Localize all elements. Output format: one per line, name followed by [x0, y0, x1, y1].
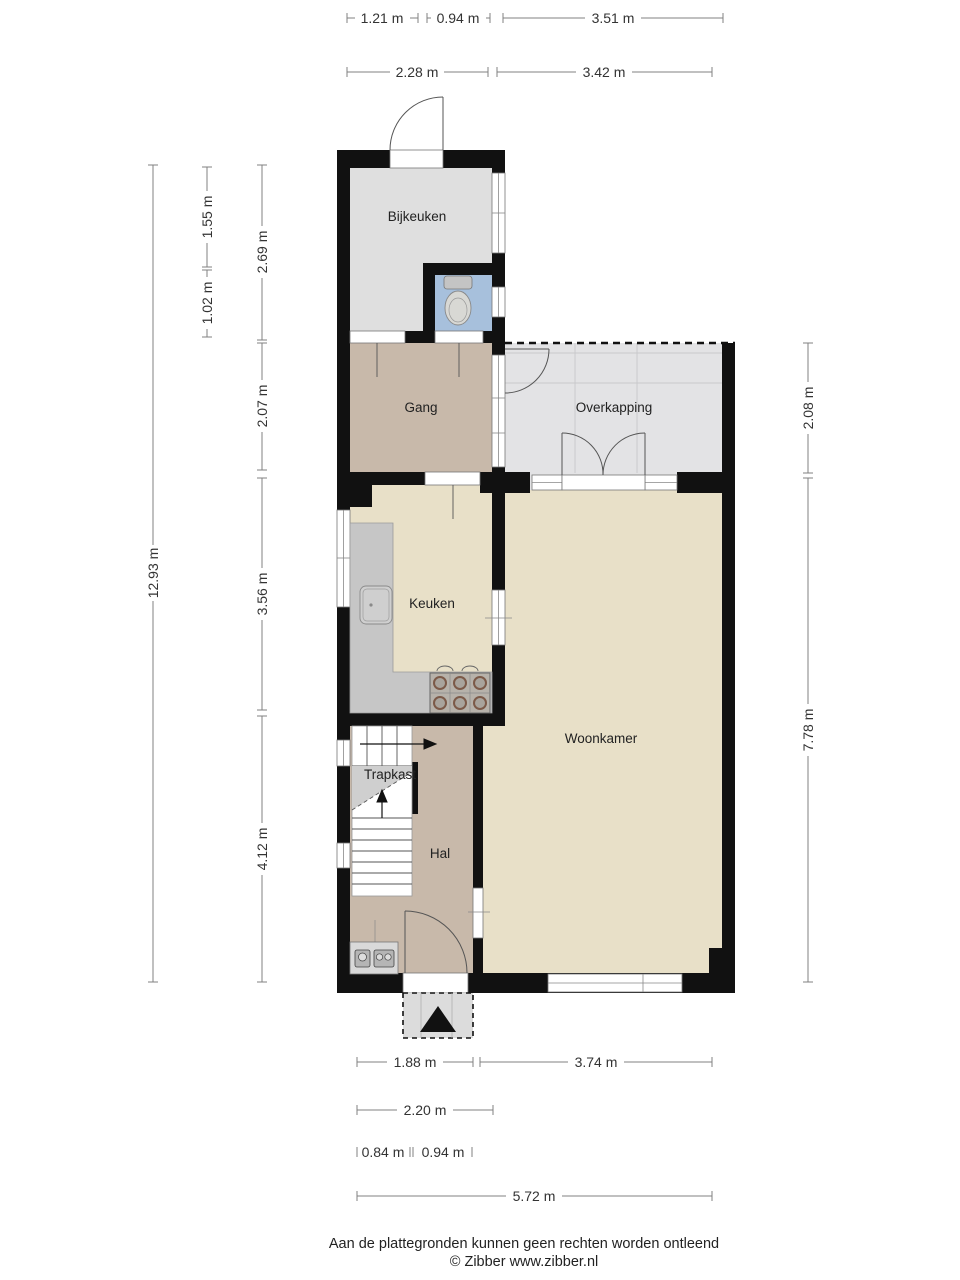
wall-woonkamer-top-left	[480, 472, 530, 493]
dim-bottom-094: 0.94 m	[422, 1144, 465, 1160]
electric-meter-icon	[355, 950, 370, 967]
dim-right-208: 2.08 m	[800, 387, 816, 430]
floorplan-drawing: Bijkeuken Gang Overkapping Keuken Woonka…	[0, 0, 960, 1280]
gas-meter-icon	[374, 950, 394, 967]
sink-icon	[360, 586, 392, 624]
dim-bottom-220: 2.20 m	[404, 1102, 447, 1118]
footer-copyright: © Zibber www.zibber.nl	[450, 1254, 599, 1270]
dim-left-1293: 12.93 m	[145, 548, 161, 599]
wall-toilet-top	[423, 263, 492, 275]
wall-keuken-hal	[350, 713, 505, 726]
wall-pier	[350, 485, 372, 507]
footer: Aan de plattegronden kunnen geen rechten…	[329, 1236, 719, 1270]
room-label-overkapping: Overkapping	[576, 400, 653, 415]
dim-left-155: 1.55 m	[199, 196, 215, 239]
dim-right-778: 7.78 m	[800, 709, 816, 752]
room-label-bijkeuken: Bijkeuken	[388, 209, 447, 224]
floorplan-page: Bijkeuken Gang Overkapping Keuken Woonka…	[0, 0, 960, 1280]
wall-right	[722, 343, 735, 993]
overkapping-floor	[505, 343, 722, 490]
dim-bottom-084: 0.84 m	[362, 1144, 405, 1160]
dim-top-2: 0.94 m	[437, 10, 480, 26]
wall-hal-woonkamer-upper	[473, 726, 483, 888]
dim-top-5: 3.42 m	[583, 64, 626, 80]
room-label-woonkamer: Woonkamer	[565, 731, 638, 746]
footer-disclaimer: Aan de plattegronden kunnen geen rechten…	[329, 1236, 719, 1252]
dim-left-207: 2.07 m	[254, 385, 270, 428]
toilet-icon	[444, 276, 472, 325]
bijkeuken-door-arc	[390, 97, 443, 150]
wall-notch	[709, 948, 735, 975]
room-label-hal: Hal	[430, 846, 450, 861]
room-label-gang: Gang	[404, 400, 437, 415]
dim-left-356: 3.56 m	[254, 573, 270, 616]
room-label-trapkast: Trapkast	[364, 767, 416, 782]
dim-top-1: 1.21 m	[361, 10, 404, 26]
dim-top-3: 3.51 m	[592, 10, 635, 26]
dim-left-102: 1.02 m	[199, 282, 215, 325]
room-label-keuken: Keuken	[409, 596, 455, 611]
stove-icon	[430, 666, 490, 713]
entrance-porch	[403, 993, 473, 1038]
dim-bottom-188: 1.88 m	[394, 1054, 437, 1070]
dim-bottom-572: 5.72 m	[513, 1188, 556, 1204]
dim-top-4: 2.28 m	[396, 64, 439, 80]
wall-hal-woonkamer-lower	[473, 938, 483, 973]
dim-left-412: 4.12 m	[254, 828, 270, 871]
dim-left-269: 2.69 m	[254, 231, 270, 274]
dim-bottom-374: 3.74 m	[575, 1054, 618, 1070]
